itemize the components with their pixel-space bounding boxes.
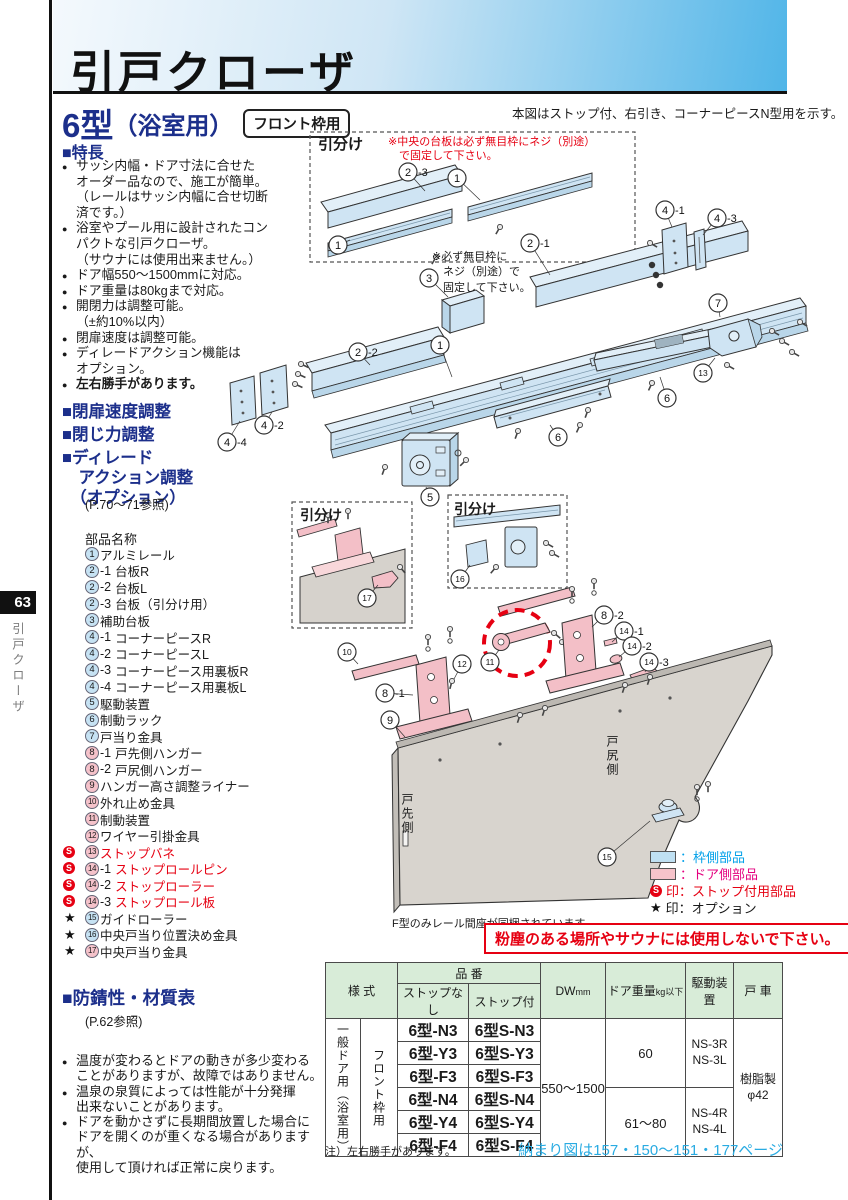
svg-text:4: 4 (714, 213, 720, 225)
svg-text:2: 2 (405, 167, 411, 179)
caution-item: ●ドアを動かさずに長期間放置した場合に ドアを開くのが重くなる場合がありますが、… (62, 1114, 332, 1175)
page-edge-rule (49, 0, 52, 1200)
option-star-icon: ★ (64, 927, 76, 943)
part-number-suffix: -3 (100, 895, 111, 909)
part-number-badge: 6 (85, 713, 99, 727)
bullet-icon: ● (62, 300, 67, 316)
base-plate-l-assembly (292, 327, 446, 398)
callout-8-1: 8-1 (376, 684, 413, 702)
svg-text:-3: -3 (418, 167, 428, 179)
callout-12: 12 (453, 655, 471, 679)
caution-item-text: ドアを動かさずに長期間放置した場合に ドアを開くのが重くなる場合がありますが、 … (76, 1114, 310, 1175)
support-plate (442, 290, 484, 333)
callout-13: 13 (694, 358, 715, 382)
svg-text:-2: -2 (642, 641, 652, 653)
spec-cell: 6型S-N3 (469, 1019, 541, 1042)
spec-cell: 6型-N4 (398, 1088, 469, 1111)
svg-text:12: 12 (457, 659, 467, 669)
side-category-label: 引戸クローザ (8, 622, 27, 715)
svg-text:14: 14 (619, 626, 629, 636)
part-number-badge: 7 (85, 729, 99, 743)
dust-sauna-warning: 粉塵のある場所やサウナには使用しないで下さい。 (484, 923, 848, 954)
feature-item-text: 左右勝手があります。 (76, 376, 203, 391)
svg-text:-1: -1 (634, 626, 644, 638)
spec-row: 一般ドア用（浴室用）フロント枠用6型-N36型S-N3550～150060NS-… (326, 1019, 783, 1042)
option-star-icon: ★ (650, 900, 662, 916)
svg-text:5: 5 (427, 492, 433, 504)
door-rear-side-label: 戸尻側 (604, 735, 621, 777)
part-number-badge: 2 (85, 564, 99, 578)
part-number-badge: 13 (85, 845, 99, 859)
stop-s-icon: S (650, 885, 662, 897)
svg-text:4: 4 (662, 205, 668, 217)
spec-cell: 樹脂製 φ42 (734, 1019, 783, 1157)
svg-text:-3: -3 (727, 213, 737, 225)
screw-fix-note: ※必ず無目枠に ネジ（別途）で 固定して下さい。 (432, 250, 531, 296)
hikiwake-label-right: 引分け (454, 499, 496, 519)
header-wheel: 戸 車 (734, 963, 783, 1019)
legend-row: ★印：オプション (650, 899, 796, 916)
part-number-suffix: -1 (100, 630, 111, 644)
option-star-icon: ★ (64, 910, 76, 926)
page-number-tab: 63 (0, 591, 36, 614)
callout-6: 6 (658, 377, 676, 407)
part-number-badge: 14 (85, 895, 99, 909)
svg-text:-1: -1 (675, 205, 685, 217)
part-number-badge: 17 (85, 944, 99, 958)
center-plate-warning: ※中央の台板は必ず無目枠にネジ（別途） で固定して下さい。 (388, 135, 595, 164)
svg-text:-2: -2 (614, 610, 624, 622)
callout-5: 5 (421, 487, 439, 506)
header-yoshiki: 様 式 (326, 963, 398, 1019)
svg-text:15: 15 (602, 852, 612, 862)
spec-cell: 6型S-Y4 (469, 1111, 541, 1134)
svg-text:1: 1 (335, 240, 341, 252)
table-footnotes: 注）左右勝手があります。 納まり図は157・150～151・177ページ (325, 1139, 783, 1160)
part-number-badge: 1 (85, 547, 99, 561)
spec-cell: 550～1500 (541, 1019, 606, 1157)
svg-text:-4: -4 (237, 437, 247, 449)
hikiwake-label-top: 引分け (318, 133, 363, 154)
svg-text:-2: -2 (368, 347, 378, 359)
part-number-badge: 14 (85, 862, 99, 876)
header-dw: DWmm (541, 963, 606, 1019)
spec-cell: NS-3R NS-3L (686, 1019, 734, 1088)
callout-10: 10 (338, 643, 358, 664)
svg-text:16: 16 (455, 574, 465, 584)
spec-cell: 一般ドア用（浴室用） (326, 1019, 361, 1157)
svg-text:2: 2 (527, 238, 533, 250)
title-band: 引戸クローザ (53, 0, 787, 94)
bullet-icon: ● (62, 1116, 67, 1131)
callout-7: 7 (709, 294, 727, 317)
part-number-suffix: -2 (100, 647, 111, 661)
svg-text:11: 11 (486, 657, 495, 667)
cautions-list: ●温度が変わるとドアの動きが多少変わる ことがありますが、故障ではありません。●… (62, 1053, 332, 1175)
svg-text:14: 14 (644, 657, 654, 667)
part-number-badge: 3 (85, 613, 99, 627)
part-number-badge: 14 (85, 878, 99, 892)
part-number-badge: 2 (85, 597, 99, 611)
spec-cell: 6型S-Y3 (469, 1042, 541, 1065)
bullet-icon: ● (62, 1086, 67, 1101)
stop-s-icon: S (63, 862, 75, 874)
door-front-side-label: 戸先側 (399, 793, 416, 835)
svg-text:7: 7 (715, 298, 721, 310)
svg-text:1: 1 (454, 173, 460, 185)
part-number-badge: 4 (85, 630, 99, 644)
bullet-icon: ● (62, 378, 67, 394)
svg-text:1: 1 (437, 340, 443, 352)
callout-9: 9 (381, 711, 405, 737)
callout-4-2: 4-2 (255, 412, 284, 434)
pink-swatch (650, 868, 676, 880)
header-stop-none: ストップなし (398, 984, 469, 1019)
legend-row: ：ドア側部品 (650, 865, 796, 882)
part-number-suffix: -1 (100, 564, 111, 578)
svg-text:-1: -1 (540, 238, 550, 250)
table-header-row-1: 様 式 品 番 DWmm ドア重量kg以下 駆動装置 戸 車 (326, 963, 783, 984)
rustproof-page-ref: (P.62参照) (85, 1011, 142, 1030)
callout-1: 1 (448, 169, 480, 200)
caution-item-text: 温泉の泉質によっては性能が十分発揮 出来ないことがあります。 (76, 1084, 296, 1114)
header-weight: ドア重量kg以下 (606, 963, 686, 1019)
bullet-icon: ● (62, 222, 67, 238)
bullet-icon: ● (62, 1055, 67, 1070)
legend-row: ：枠側部品 (650, 848, 796, 865)
legend-row: S印：ストップ付用部品 (650, 882, 796, 899)
spec-cell: 6型-Y4 (398, 1111, 469, 1134)
hikiwake-label-left: 引分け (300, 505, 342, 525)
parts-legend: ：枠側部品：ドア側部品S印：ストップ付用部品★印：オプション (650, 848, 796, 916)
part-number-badge: 9 (85, 779, 99, 793)
part-number-suffix: -3 (100, 597, 111, 611)
blue-swatch (650, 851, 676, 863)
part-number-suffix: -2 (100, 878, 111, 892)
caution-item: ●温泉の泉質によっては性能が十分発揮 出来ないことがあります。 (62, 1084, 332, 1115)
part-label: 中央戸当り金具 (100, 942, 188, 961)
part-number-suffix: -1 (100, 862, 111, 876)
adjustment-page-ref: (P.70～71参照) (85, 494, 169, 513)
part-number-badge: 16 (85, 928, 99, 942)
part-number-suffix: -2 (100, 762, 111, 776)
callout-4-4: 4-4 (218, 421, 247, 451)
spec-cell: 6型-Y3 (398, 1042, 469, 1065)
svg-text:17: 17 (362, 593, 372, 603)
part-number-badge: 15 (85, 911, 99, 925)
feature-item-text: 開閉力は調整可能。 （±約10%以内） (76, 298, 191, 329)
corner-piece-backplates (230, 365, 288, 425)
spec-cell: フロント枠用 (361, 1019, 398, 1157)
part-number-suffix: -4 (100, 680, 111, 694)
part-number-badge: 12 (85, 829, 99, 843)
part-number-badge: 4 (85, 647, 99, 661)
svg-text:2: 2 (355, 347, 361, 359)
rustproof-heading: ■防錆性・材質表 (62, 985, 195, 1010)
header-hinban: 品 番 (398, 963, 541, 984)
part-number-suffix: -2 (100, 580, 111, 594)
part-number-badge: 10 (85, 795, 99, 809)
page-number: 63 (14, 594, 31, 611)
stop-s-icon: S (63, 846, 75, 858)
svg-text:13: 13 (698, 368, 708, 378)
svg-text:6: 6 (664, 393, 670, 405)
part-number-suffix: -3 (100, 663, 111, 677)
caution-item: ●温度が変わるとドアの動きが多少変わる ことがありますが、故障ではありません。 (62, 1053, 332, 1084)
handedness-note: 注）左右勝手があります。 (325, 1143, 456, 1159)
stop-s-icon: S (63, 895, 75, 907)
caution-item-text: 温度が変わるとドアの動きが多少変わる ことがありますが、故障ではありません。 (76, 1053, 322, 1083)
bullet-icon: ● (62, 347, 67, 363)
svg-text:-2: -2 (274, 420, 284, 432)
exploded-diagram: 2-31132-14-14-32-24-24-415667131716118-2… (200, 115, 848, 960)
callout-6: 6 (549, 425, 567, 446)
part-number-badge: 4 (85, 663, 99, 677)
spec-table: 様 式 品 番 DWmm ドア重量kg以下 駆動装置 戸 車 ストップなし スト… (325, 962, 783, 1157)
bullet-icon: ● (62, 160, 67, 176)
callout-4-1: 4-1 (656, 201, 685, 227)
svg-text:8: 8 (382, 688, 388, 700)
spec-cell: 6型-F3 (398, 1065, 469, 1088)
part-number-suffix: -1 (100, 746, 111, 760)
part-number-badge: 2 (85, 580, 99, 594)
svg-text:4: 4 (224, 437, 230, 449)
part-number-badge: 11 (85, 812, 99, 826)
spec-cell: 6型S-N4 (469, 1088, 541, 1111)
installation-page-ref: 納まり図は157・150～151・177ページ (518, 1139, 783, 1160)
part-number-badge: 8 (85, 762, 99, 776)
spec-cell: 6型S-F3 (469, 1065, 541, 1088)
part-number-badge: 5 (85, 696, 99, 710)
adjust-heading-1: ■閉じ力調整 (62, 425, 193, 445)
svg-text:9: 9 (387, 715, 393, 727)
option-star-icon: ★ (64, 943, 76, 959)
part-number-badge: 4 (85, 680, 99, 694)
svg-text:8: 8 (601, 610, 607, 622)
svg-text:6: 6 (555, 432, 561, 444)
part-number-badge: 8 (85, 746, 99, 760)
drive-unit (402, 433, 470, 486)
svg-text:-1: -1 (395, 688, 405, 700)
adjust-heading-0: ■閉扉速度調整 (62, 402, 193, 422)
feature-item-text: 閉扉速度は調整可能。 (76, 330, 204, 345)
header-drive: 駆動装置 (686, 963, 734, 1019)
svg-text:10: 10 (342, 647, 352, 657)
callout-16: 16 (451, 565, 470, 588)
header-stop-with: ストップ付 (469, 984, 541, 1019)
spec-cell: 60 (606, 1019, 686, 1088)
legend-text: 印：オプション (666, 898, 757, 917)
page-title: 引戸クローザ (70, 36, 357, 101)
svg-text:-3: -3 (659, 657, 669, 669)
stop-s-icon: S (63, 879, 75, 891)
spec-cell: 6型-N3 (398, 1019, 469, 1042)
svg-text:4: 4 (261, 420, 267, 432)
svg-text:14: 14 (627, 641, 637, 651)
